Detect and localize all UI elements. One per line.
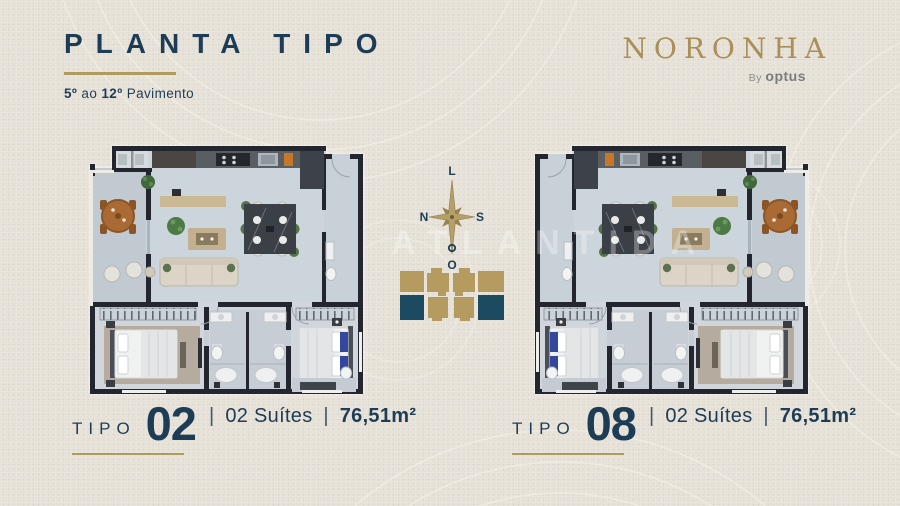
unit-details: | 02 Suítes | 76,51m²	[204, 405, 416, 428]
keyplan-unit-08	[478, 295, 504, 320]
divider: |	[758, 405, 774, 427]
divider: |	[204, 405, 220, 427]
title-underline-decoration	[64, 72, 176, 75]
marketing-page: L S O N ATLANTIDA PLANTA TIPO 5º ao 12º …	[0, 0, 900, 506]
brand-by-label: By	[749, 72, 762, 84]
tipo-label: TIPO	[72, 419, 136, 444]
compass-rose-icon: L S O N	[417, 162, 487, 272]
keyplan-units-highlighted	[400, 295, 504, 320]
page-title: PLANTA TIPO	[64, 28, 391, 60]
unit-area: 76,51m²	[780, 405, 857, 427]
compass-label-top: L	[448, 164, 455, 178]
caption-underline-decoration	[512, 453, 624, 456]
keyplan-unit-02	[400, 295, 424, 320]
brand-logo: NORONHA By optus	[622, 32, 832, 84]
divider: |	[644, 405, 660, 427]
floor-from: 5º	[64, 86, 77, 101]
compass-label-right: S	[476, 210, 484, 224]
unit-area: 76,51m²	[340, 405, 417, 427]
brand-developer: optus	[765, 68, 806, 84]
floor-plan-tipo-08	[532, 142, 812, 398]
suites-count: 02 Suítes	[225, 405, 312, 427]
tipo-number: 08	[586, 404, 636, 444]
floor-conj: ao	[81, 86, 97, 101]
caption-underline-decoration	[72, 453, 184, 456]
brand-name: NORONHA	[622, 32, 832, 65]
unit-caption-tipo-02: TIPO 02 | 02 Suítes | 76,51m²	[72, 404, 416, 455]
divider: |	[318, 405, 334, 427]
suites-count: 02 Suítes	[665, 405, 752, 427]
floor-to: 12º	[101, 86, 122, 101]
floor-word: Pavimento	[127, 86, 194, 101]
unit-details: | 02 Suítes | 76,51m²	[644, 405, 856, 428]
floors-subtitle: 5º ao 12º Pavimento	[64, 86, 391, 101]
tipo-number: 02	[146, 404, 196, 444]
title-block: PLANTA TIPO 5º ao 12º Pavimento	[64, 28, 391, 101]
compass-label-left: N	[420, 210, 429, 224]
keyplan-diagram	[398, 266, 506, 322]
floor-plan-tipo-02	[86, 142, 366, 398]
tipo-label: TIPO	[512, 419, 576, 444]
brand-byline: By optus	[622, 68, 806, 84]
unit-caption-tipo-08: TIPO 08 | 02 Suítes | 76,51m²	[512, 404, 856, 455]
